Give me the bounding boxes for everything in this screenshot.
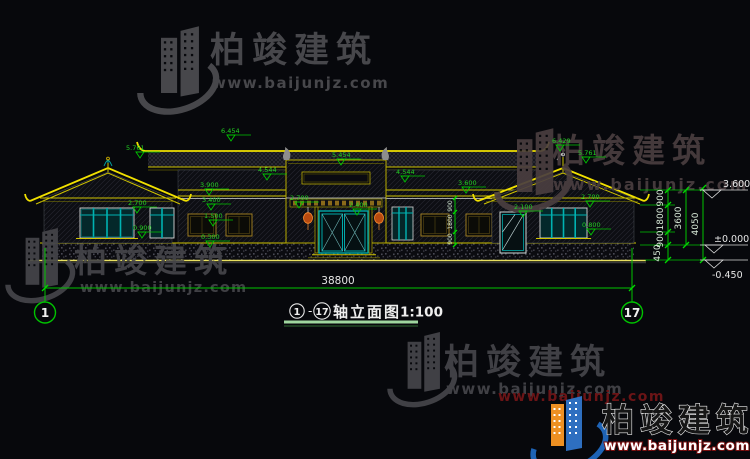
title-underline [284,321,418,324]
svg-text:4.544: 4.544 [396,168,415,176]
title-axis-end: 17 [315,307,328,318]
dim-total-width: 38800 [321,275,354,287]
inner-dim-chain: 900 1800 900 [447,196,457,247]
axis-bubble-17: 17 [622,302,643,323]
title-text: 轴立面图 [333,303,401,321]
svg-text:5.761: 5.761 [126,144,145,152]
svg-text:2.700: 2.700 [581,193,600,201]
level-3600: 3.600 [723,179,750,190]
svg-text:3.600: 3.600 [458,179,477,187]
svg-text:2.700: 2.700 [128,199,147,207]
left-window-large [76,208,138,239]
mid-left-window-2 [226,214,252,236]
svg-text:17: 17 [624,306,641,320]
svg-text:0.800: 0.800 [582,221,601,229]
title-scale: 1:100 [400,305,443,321]
dim-450: 450 [653,244,663,261]
svg-text:6.429: 6.429 [552,137,571,145]
mid-right-window-2 [466,214,492,236]
svg-text:2.400: 2.400 [349,201,368,209]
watermark-url-text: www.baijunjz.com [212,74,389,92]
dim-900-top: 900 [656,189,666,206]
level-zero: ±0.000 [714,234,749,245]
watermark-brand-text: 柏竣建筑 [444,342,612,383]
dim-1800: 1800 [656,207,666,230]
logo-building-orange [551,404,564,446]
inner-dim-900a: 900 [447,200,454,212]
svg-text:2.100: 2.100 [514,203,533,211]
svg-text:3.400: 3.400 [202,196,221,204]
right-wing-door [500,212,526,253]
dim-3600: 3600 [674,206,684,229]
level-minus-450: -0.450 [712,270,743,281]
svg-text:2.700: 2.700 [290,194,309,202]
svg-text:1: 1 [41,306,49,320]
watermark-brand-text: 柏竣建筑 [210,30,378,71]
center-right-narrow-window [392,207,413,240]
inner-dim-900b: 900 [447,233,454,245]
watermark-brand-text-color: 柏竣建筑 [602,401,750,439]
left-window-small [150,208,174,238]
dim-4050: 4050 [691,212,701,235]
watermark-brand-text: 柏竣建筑 [552,131,712,170]
svg-text:0.900: 0.900 [133,224,152,232]
entrance-door [319,211,368,253]
svg-text:3.900: 3.900 [200,181,219,189]
watermark-url-text-color: www.baijunjz.com [604,438,750,454]
title-dash: - [308,304,312,318]
svg-text:5.454: 5.454 [332,151,351,159]
svg-text:1.500: 1.500 [204,212,223,220]
svg-text:4.544: 4.544 [258,166,277,174]
door-column-right [369,207,372,253]
svg-text:0.300: 0.300 [201,233,220,241]
title-axis-start: 1 [294,307,301,318]
svg-text:6.454: 6.454 [221,127,240,135]
logo-building-blue [566,396,582,451]
mid-right-window-1 [421,214,449,236]
cad-canvas: 柏竣建筑 www.baijunjz.com [0,0,750,459]
door-column-left [315,207,318,253]
inner-dim-1800: 1800 [447,214,454,229]
svg-text:5.761: 5.761 [578,149,597,157]
